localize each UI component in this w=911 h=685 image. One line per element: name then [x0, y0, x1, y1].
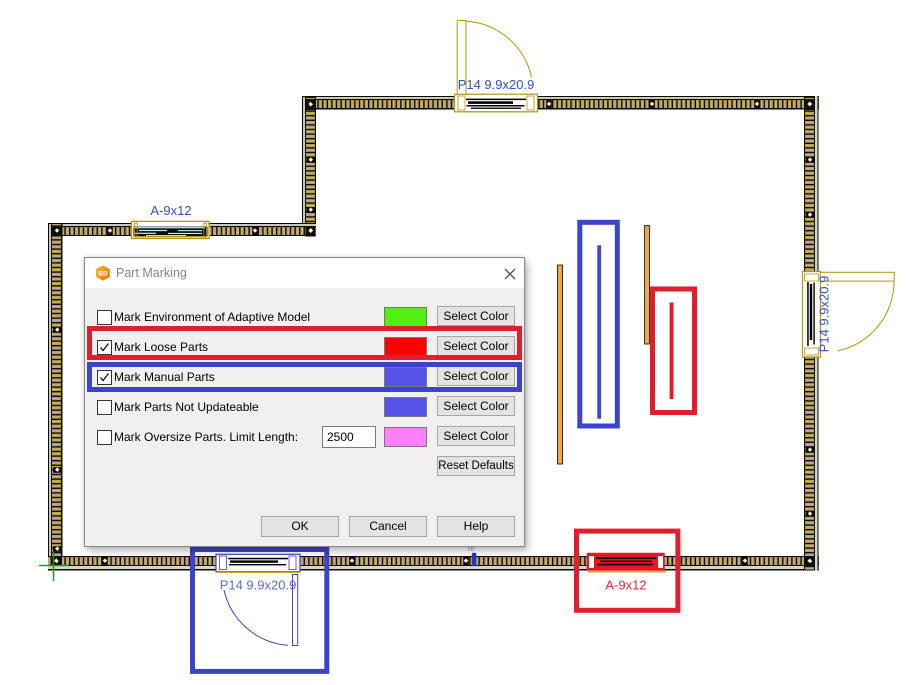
svg-text:P14 9.9x20.9: P14 9.9x20.9	[458, 77, 535, 92]
svg-text:P14 9.9x20.9: P14 9.9x20.9	[817, 276, 832, 353]
svg-text:A-9x12: A-9x12	[605, 578, 646, 593]
svg-text:A-9x12: A-9x12	[150, 203, 191, 218]
svg-text:BD: BD	[98, 271, 108, 278]
svg-text:P14 9.9x20.9: P14 9.9x20.9	[220, 578, 297, 593]
svg-text:rb: rb	[468, 546, 474, 553]
